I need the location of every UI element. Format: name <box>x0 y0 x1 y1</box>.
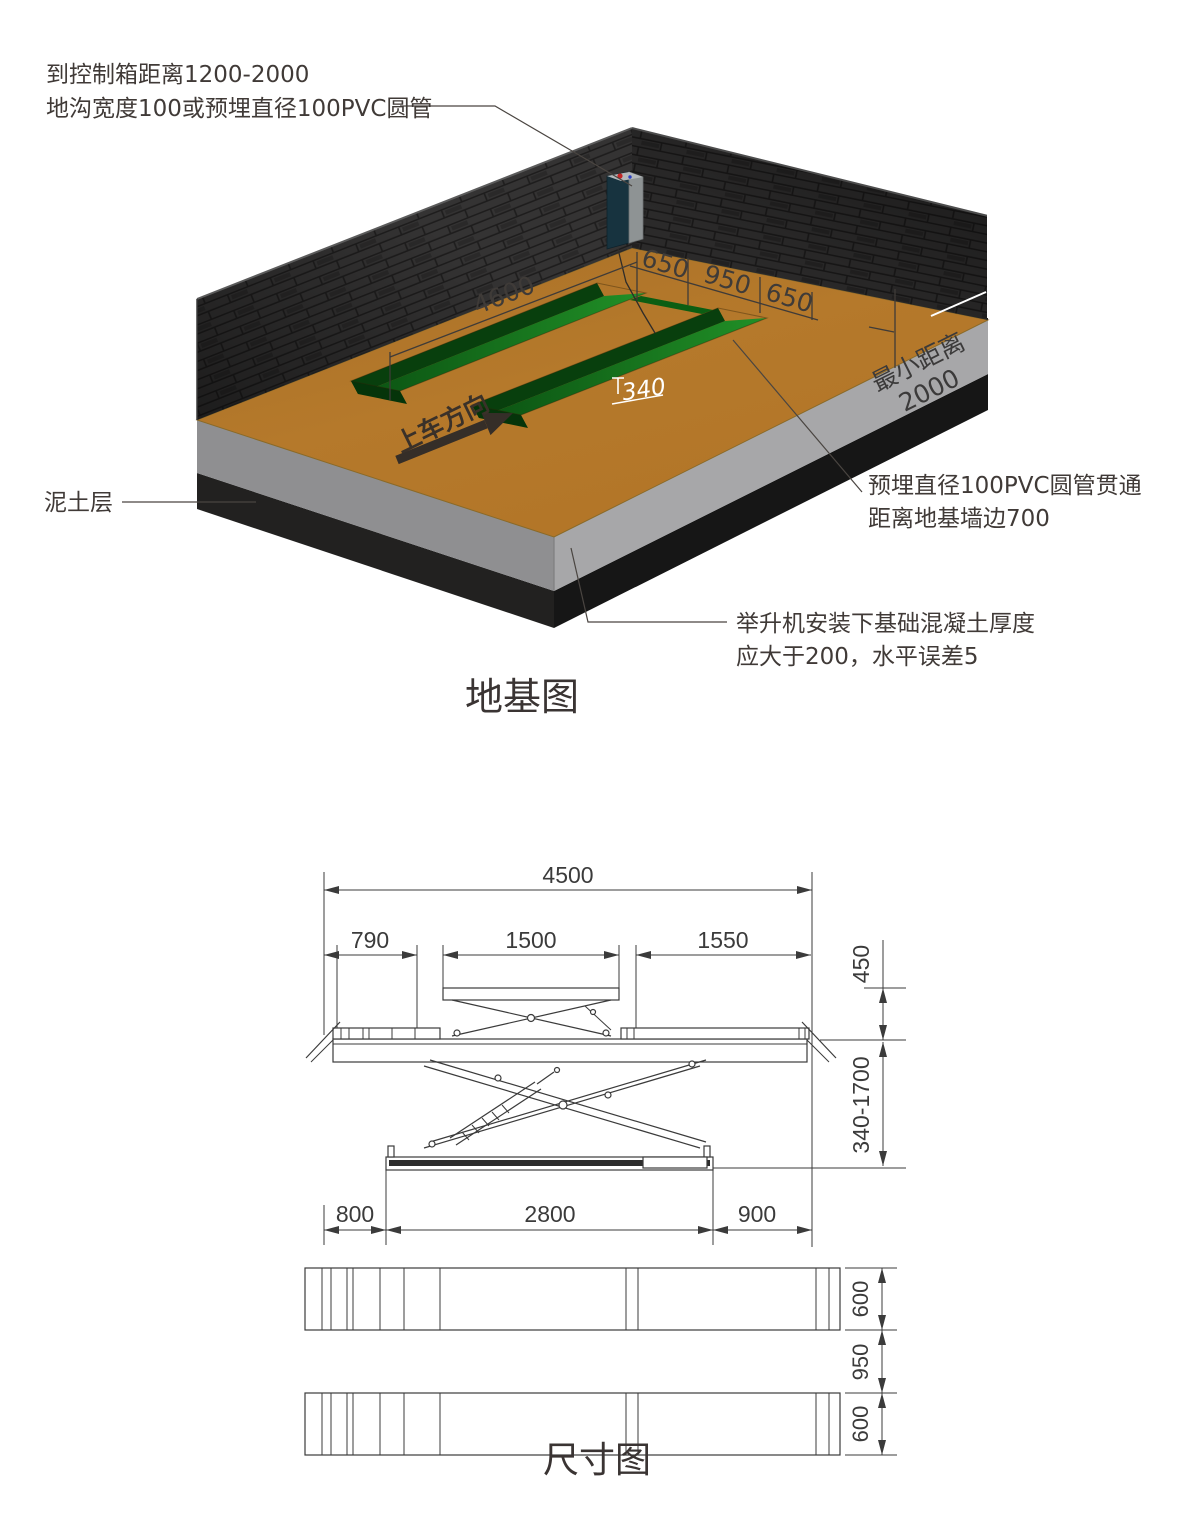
dim-table-length: 1500 <box>505 927 556 953</box>
small-scissor-roller-left <box>454 1030 460 1036</box>
annotation-concrete-line1: 举升机安装下基础混凝土厚度 <box>736 611 1035 637</box>
dim-left-offset: 790 <box>351 927 389 953</box>
dim-right-cover: 1550 <box>697 927 748 953</box>
base-post-left <box>388 1146 394 1157</box>
dim-lift-height-range: 340-1700 <box>848 1056 874 1153</box>
dim-table-height: 450 <box>848 945 874 983</box>
small-scissor-link <box>585 1006 611 1030</box>
platform-1-joints <box>322 1268 829 1330</box>
foundation-3d-view: 4600 650 950 650 340 上车方向 最小距离 <box>44 62 1142 719</box>
annotation-control-line1: 到控制箱距离1200-2000 <box>46 62 309 88</box>
scissor-lift-side-view <box>306 988 836 1170</box>
control-box-side <box>629 172 643 243</box>
small-scissor-link-pivot <box>591 1010 596 1015</box>
main-platform <box>333 1039 807 1062</box>
top-view-platform-1 <box>305 1268 840 1330</box>
foot-pivot-left <box>429 1141 435 1147</box>
page: 4600 650 950 650 340 上车方向 最小距离 <box>0 0 1200 1530</box>
platform-top-view: 600 950 600 <box>305 1268 897 1455</box>
base-post-right <box>704 1146 710 1157</box>
base-end-unit <box>643 1157 707 1168</box>
base-frame <box>386 1146 713 1170</box>
arm-mid-pivot <box>605 1092 611 1098</box>
arm-top-pivot <box>689 1061 695 1067</box>
dim-platform-width-top: 600 <box>848 1281 873 1318</box>
dimension-drawing: 4500 790 1500 1550 450 340-1700 <box>305 862 906 1481</box>
left-ramp-edge <box>311 1040 333 1062</box>
top-dimensions: 4500 790 1500 1550 450 340-1700 <box>324 862 883 1166</box>
right-ramp-edge <box>807 1040 829 1062</box>
main-scissor <box>424 1060 706 1148</box>
dim-base-right-offset: 900 <box>738 1201 776 1227</box>
cylinder-upper-mount <box>495 1075 501 1081</box>
rod-end-pivot <box>555 1068 560 1073</box>
control-box-front <box>607 172 629 249</box>
annotation-pvc-line2: 距离地基墙边700 <box>868 506 1050 532</box>
control-box-blue-button <box>628 175 631 178</box>
dim-base-left-offset: 800 <box>336 1201 374 1227</box>
cylinder-rod <box>537 1072 554 1084</box>
annotation-pvc-line1: 预埋直径100PVC圆管贯通 <box>868 473 1142 499</box>
foundation-title: 地基图 <box>465 675 579 719</box>
small-scissor-roller-right <box>603 1030 609 1036</box>
annotation-control-line2: 地沟宽度100或预埋直径100PVC圆管 <box>46 96 432 122</box>
technical-diagram: 4600 650 950 650 340 上车方向 最小距离 <box>0 0 1200 1530</box>
annotation-soil: 泥土层 <box>44 490 113 516</box>
dim-platform-gap: 950 <box>848 1344 873 1381</box>
cylinder-body-1 <box>450 1082 535 1138</box>
annotation-concrete-line2: 应大于200，水平误差5 <box>736 644 979 670</box>
bottom-dimensions: 800 2800 900 <box>324 1201 812 1230</box>
right-cover-plate <box>621 1028 809 1039</box>
dim-base-length: 2800 <box>524 1201 575 1227</box>
lift-table-deck <box>443 988 619 1000</box>
dim-overall-length: 4500 <box>542 862 593 888</box>
dim-platform-width-bottom: 600 <box>848 1406 873 1443</box>
dimension-drawing-title: 尺寸图 <box>543 1440 651 1481</box>
small-scissor-pivot <box>528 1015 535 1022</box>
main-scissor-pivot <box>559 1101 567 1109</box>
